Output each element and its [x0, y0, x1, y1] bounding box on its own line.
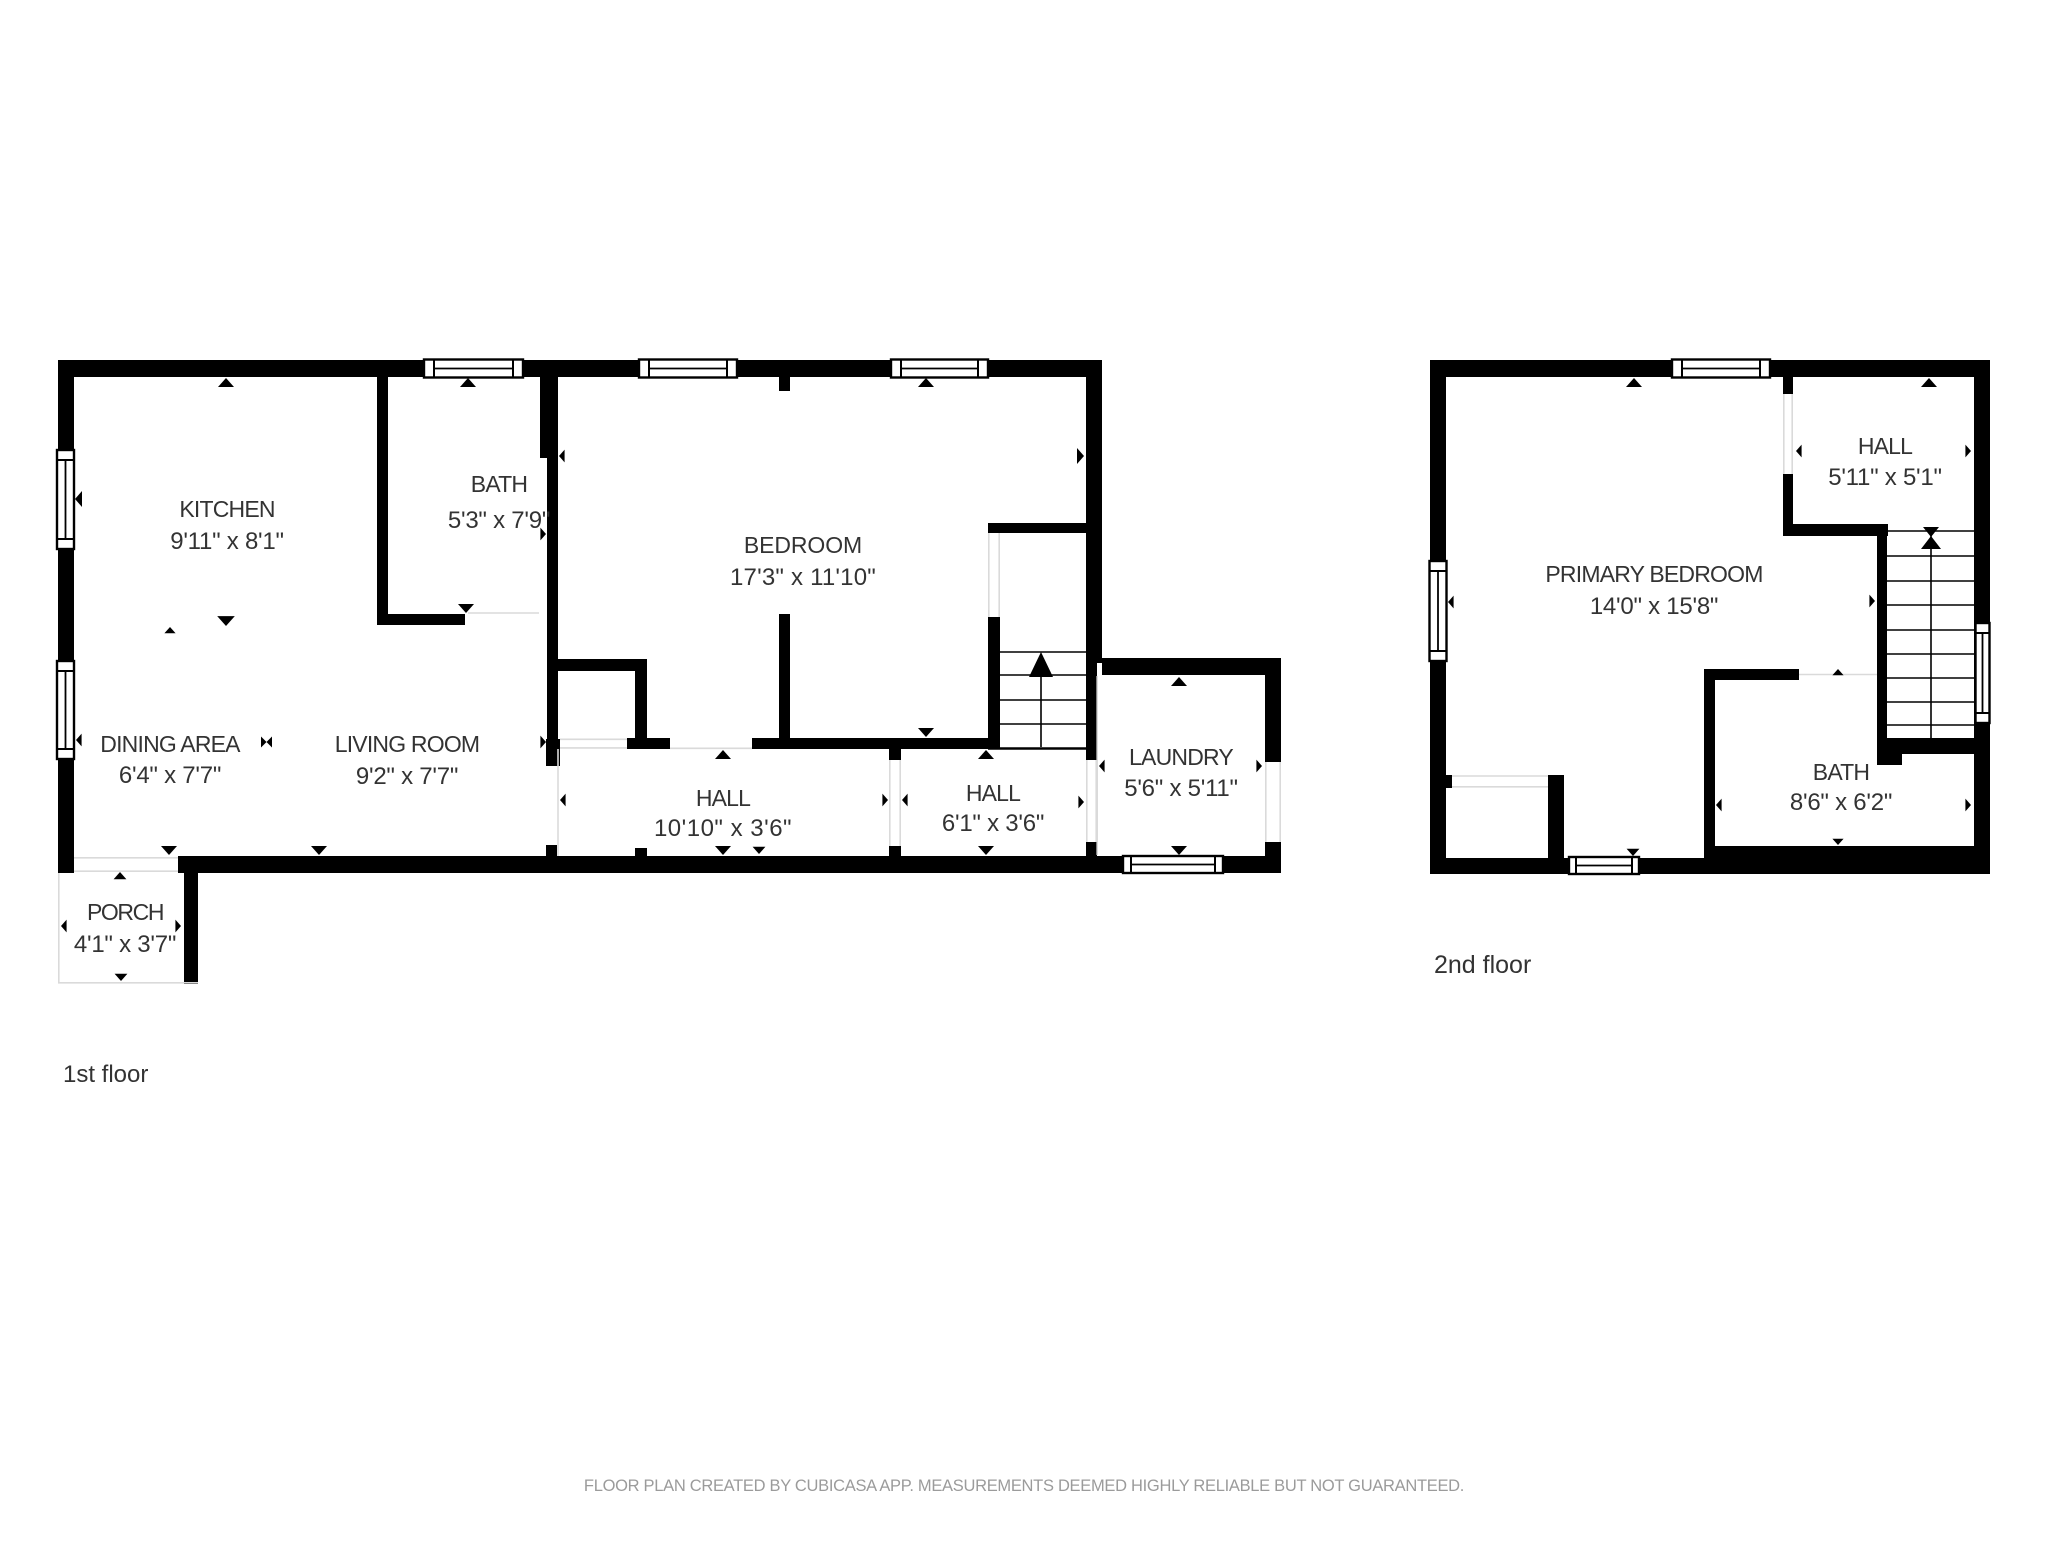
svg-text:6'4" x 7'7": 6'4" x 7'7"	[119, 762, 221, 789]
svg-text:10'10" x 3'6": 10'10" x 3'6"	[654, 815, 792, 842]
svg-text:6'1" x 3'6": 6'1" x 3'6"	[942, 810, 1044, 837]
svg-text:BEDROOM: BEDROOM	[744, 532, 862, 558]
svg-text:9'11" x 8'1": 9'11" x 8'1"	[170, 528, 284, 555]
svg-text:14'0" x 15'8": 14'0" x 15'8"	[1590, 593, 1718, 620]
svg-text:BATH: BATH	[1813, 759, 1869, 785]
svg-text:HALL: HALL	[966, 780, 1021, 806]
svg-text:DINING AREA: DINING AREA	[100, 731, 241, 757]
svg-text:5'3" x 7'9": 5'3" x 7'9"	[448, 507, 550, 534]
svg-text:2nd floor: 2nd floor	[1434, 951, 1531, 979]
svg-text:9'2" x 7'7": 9'2" x 7'7"	[356, 763, 458, 790]
svg-text:1st floor: 1st floor	[63, 1061, 148, 1088]
svg-text:5'11" x 5'1": 5'11" x 5'1"	[1828, 464, 1942, 491]
svg-text:BATH: BATH	[471, 471, 527, 497]
svg-text:FLOOR PLAN CREATED BY CUBICASA: FLOOR PLAN CREATED BY CUBICASA APP. MEAS…	[584, 1477, 1464, 1495]
svg-text:PORCH: PORCH	[87, 899, 163, 925]
svg-text:HALL: HALL	[1858, 433, 1913, 459]
svg-text:17'3" x 11'10": 17'3" x 11'10"	[730, 564, 876, 591]
svg-text:KITCHEN: KITCHEN	[179, 496, 274, 522]
svg-text:HALL: HALL	[696, 785, 751, 811]
svg-text:LIVING ROOM: LIVING ROOM	[335, 731, 480, 757]
svg-text:PRIMARY BEDROOM: PRIMARY BEDROOM	[1545, 561, 1762, 587]
svg-text:8'6" x 6'2": 8'6" x 6'2"	[1790, 789, 1892, 816]
svg-text:5'6" x 5'11": 5'6" x 5'11"	[1124, 775, 1238, 802]
svg-text:LAUNDRY: LAUNDRY	[1129, 744, 1233, 770]
svg-text:4'1" x 3'7": 4'1" x 3'7"	[74, 931, 176, 958]
